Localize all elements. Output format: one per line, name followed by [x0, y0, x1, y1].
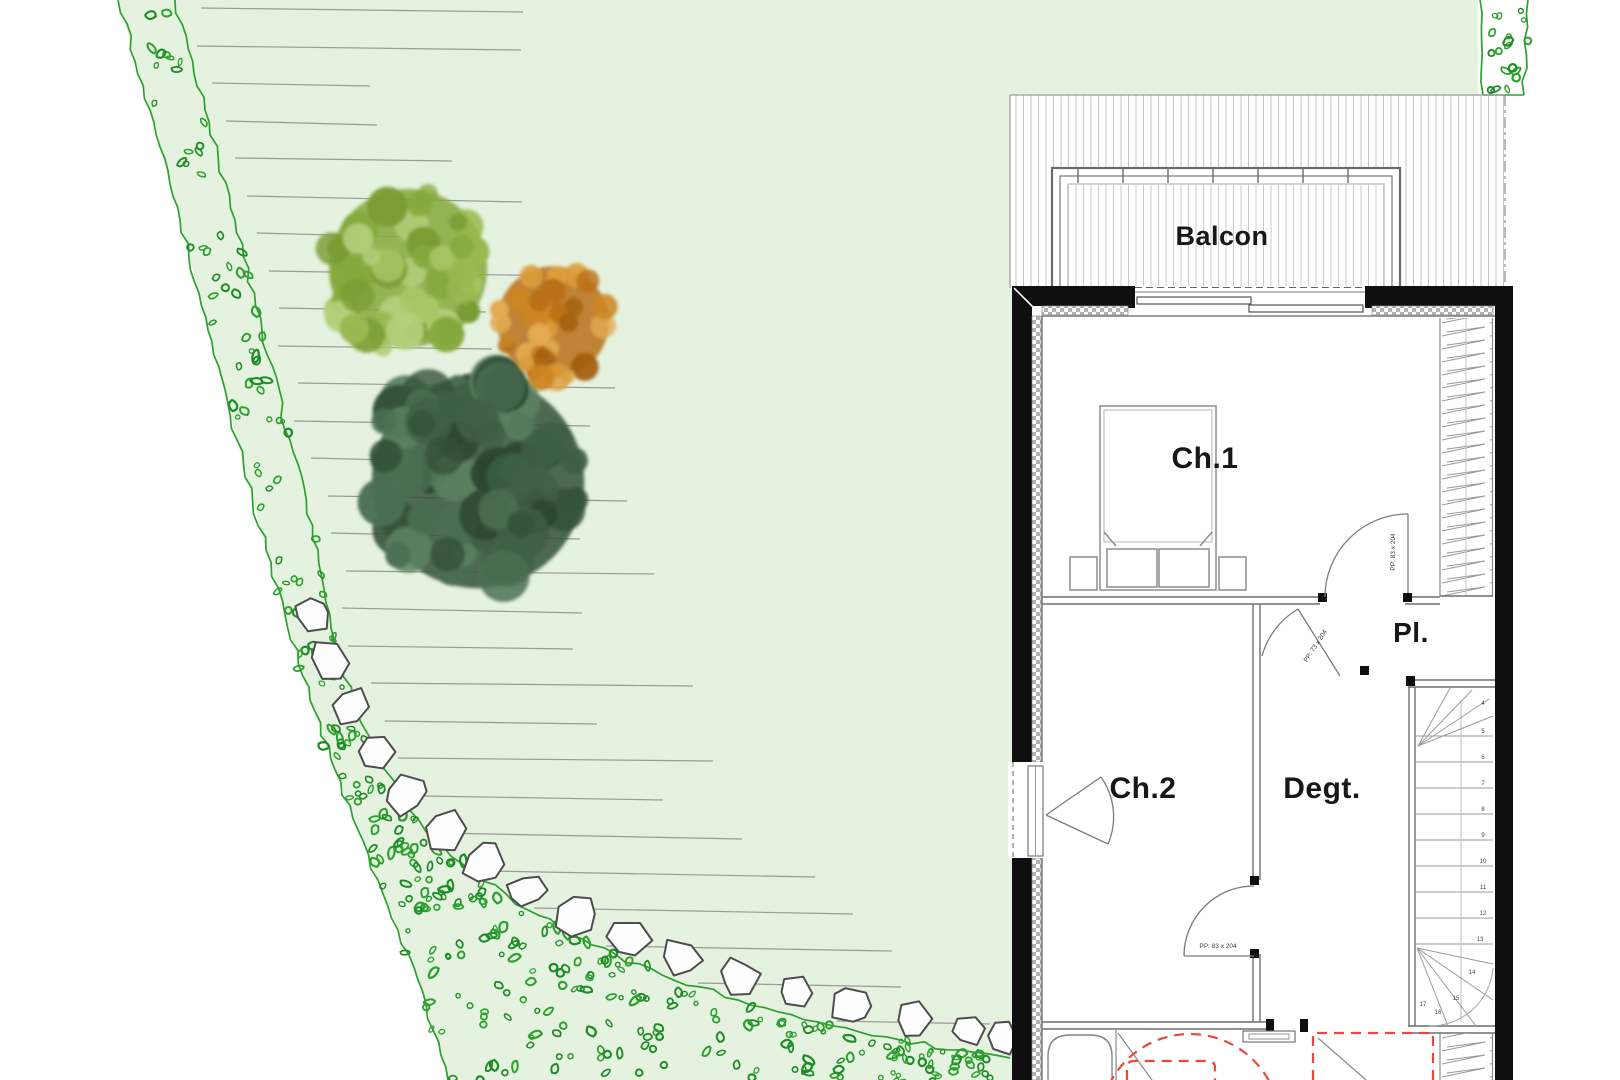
- floor-plan-drawing: Balcon: [0, 0, 1620, 1080]
- nightstand: [1070, 557, 1097, 590]
- stair-step-number: 11: [1480, 885, 1487, 891]
- room-label-ch1: Ch.1: [1171, 442, 1238, 475]
- door-label-ch2: PP: 83 x 204: [1199, 943, 1237, 950]
- partitions: [1042, 597, 1495, 1033]
- sliding-window-top: [1135, 286, 1365, 312]
- balcony: Balcon: [1010, 95, 1505, 289]
- stair-step-number: 13: [1477, 937, 1484, 943]
- wall-left-lower: [1012, 858, 1032, 1080]
- hatched-strip-upper: [1440, 318, 1493, 596]
- wall-right: [1495, 286, 1513, 1080]
- stair-step-number: 9: [1481, 833, 1485, 839]
- floor-plan-page: Balcon: [0, 0, 1620, 1080]
- stair-step-number: 15: [1453, 996, 1460, 1002]
- room-label-degt: Degt.: [1283, 772, 1361, 805]
- stair-step-number: 6: [1481, 755, 1485, 761]
- door-dimension-labels: PP: 83 x 204 PP: 83 x 204 PP: 73 x 204: [1199, 533, 1397, 950]
- stair-step-number: 16: [1435, 1010, 1442, 1016]
- window-left-wall: [1008, 762, 1044, 858]
- stair-step-number: 17: [1420, 1002, 1427, 1008]
- door-label-ch1: PP: 83 x 204: [1390, 533, 1397, 571]
- wall-top-right: [1372, 286, 1513, 306]
- room-label-balcon: Balcon: [1175, 221, 1268, 251]
- door-closet: [1262, 609, 1340, 676]
- stair-step-number: 10: [1480, 859, 1487, 865]
- bathtub: [1048, 1035, 1112, 1080]
- window-swing-ch2: [1046, 777, 1114, 844]
- red-dashed-rect-right: [1313, 1033, 1433, 1080]
- bed-ch1: [1070, 406, 1246, 590]
- door-label-closet: PP: 73 x 204: [1303, 628, 1329, 663]
- hatched-strip-lower: [1440, 1033, 1493, 1080]
- exterior-walls: [1012, 286, 1513, 1080]
- stair-step-number: 14: [1469, 970, 1476, 976]
- pillow: [1159, 549, 1209, 587]
- room-label-ch2: Ch.2: [1109, 772, 1176, 805]
- stair-step-number: 5: [1481, 729, 1485, 735]
- bathroom-fixtures: [1048, 1030, 1366, 1080]
- nightstand: [1219, 557, 1246, 590]
- staircase: 4567891011121314151617: [1415, 688, 1493, 1026]
- wall-left-upper: [1012, 286, 1032, 762]
- radiator: [1243, 1031, 1295, 1042]
- stair-step-number: 7: [1481, 781, 1485, 787]
- room-label-pl: Pl.: [1393, 617, 1429, 648]
- pillow: [1107, 549, 1157, 587]
- door-jamb-blocks: [1250, 593, 1415, 1032]
- stair-step-number: 8: [1481, 807, 1485, 813]
- stair-step-number: 12: [1480, 911, 1487, 917]
